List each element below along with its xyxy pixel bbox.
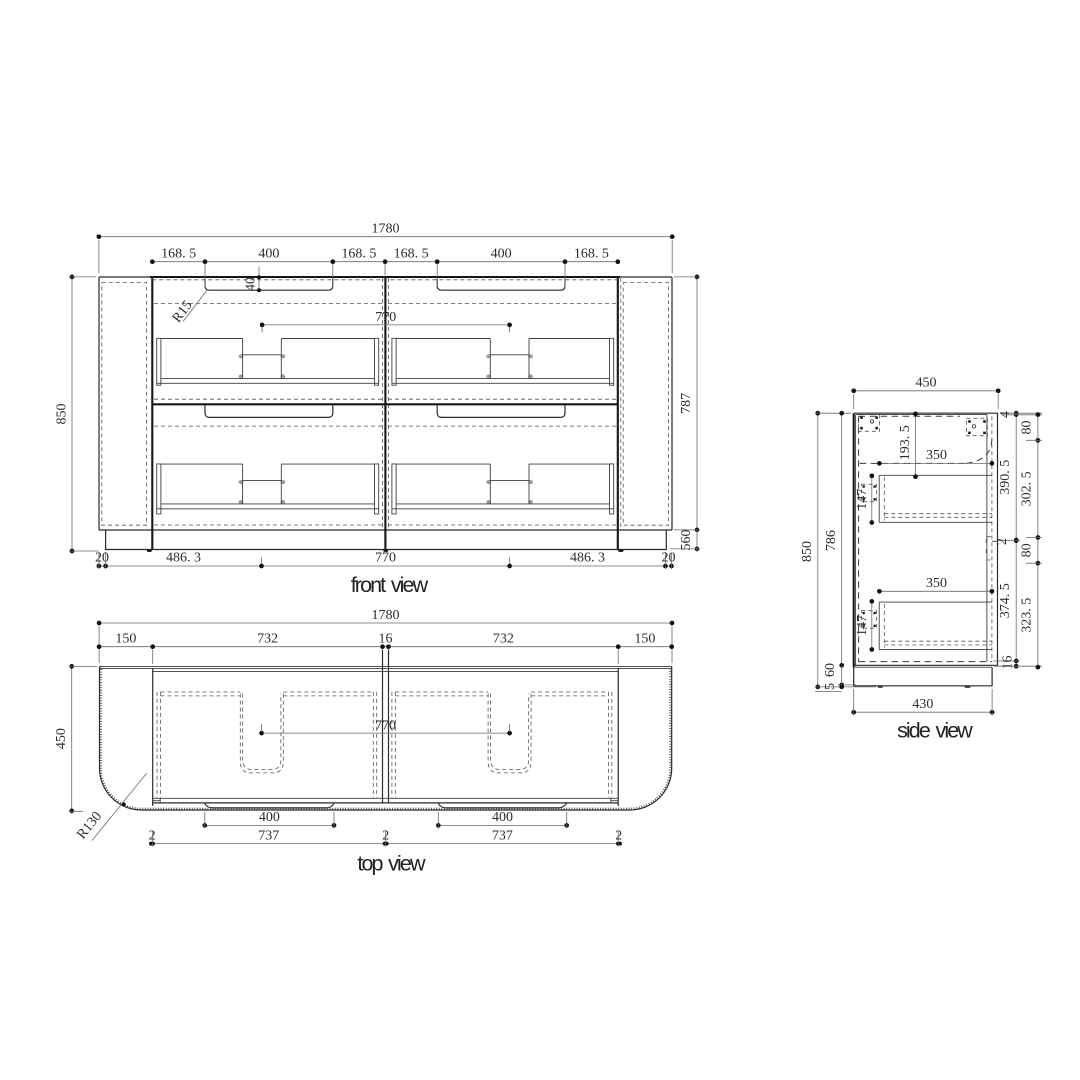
svg-text:486. 3: 486. 3 xyxy=(166,551,201,566)
svg-text:5: 5 xyxy=(823,683,838,690)
svg-text:787: 787 xyxy=(679,393,694,414)
svg-text:168. 5: 168. 5 xyxy=(161,247,196,262)
svg-text:374. 5: 374. 5 xyxy=(998,583,1013,618)
svg-text:450: 450 xyxy=(916,376,937,391)
svg-text:850: 850 xyxy=(800,541,815,562)
svg-text:400: 400 xyxy=(492,810,513,825)
svg-text:20: 20 xyxy=(95,551,109,566)
svg-text:770: 770 xyxy=(375,718,396,733)
svg-text:168. 5: 168. 5 xyxy=(574,247,609,262)
svg-text:732: 732 xyxy=(257,631,278,646)
svg-text:2: 2 xyxy=(995,538,1010,545)
svg-text:737: 737 xyxy=(258,828,279,843)
svg-text:390. 5: 390. 5 xyxy=(998,460,1013,495)
svg-text:302. 5: 302. 5 xyxy=(1020,471,1035,506)
svg-text:4: 4 xyxy=(998,411,1013,418)
svg-text:770: 770 xyxy=(375,310,396,325)
svg-text:1780: 1780 xyxy=(372,222,400,237)
svg-text:450: 450 xyxy=(54,728,69,749)
svg-text:side view: side view xyxy=(897,719,973,743)
svg-text:770: 770 xyxy=(375,551,396,566)
svg-text:2: 2 xyxy=(382,828,389,843)
svg-text:786: 786 xyxy=(824,530,839,551)
svg-text:2: 2 xyxy=(149,828,156,843)
svg-text:350: 350 xyxy=(926,448,947,463)
svg-text:400: 400 xyxy=(259,810,280,825)
svg-text:737: 737 xyxy=(492,828,513,843)
svg-text:323. 5: 323. 5 xyxy=(1020,598,1035,633)
svg-text:150: 150 xyxy=(634,631,655,646)
svg-text:16: 16 xyxy=(1001,656,1016,670)
svg-text:350: 350 xyxy=(926,576,947,591)
svg-text:2: 2 xyxy=(615,828,622,843)
svg-text:1780: 1780 xyxy=(372,608,400,623)
svg-text:732: 732 xyxy=(493,631,514,646)
svg-text:front view: front view xyxy=(351,573,429,597)
svg-text:60: 60 xyxy=(823,663,838,677)
svg-text:193. 5: 193. 5 xyxy=(898,425,913,460)
svg-text:400: 400 xyxy=(491,247,512,262)
svg-text:40: 40 xyxy=(244,277,259,291)
svg-text:20: 20 xyxy=(662,551,676,566)
svg-text:168. 5: 168. 5 xyxy=(341,247,376,262)
svg-text:168. 5: 168. 5 xyxy=(394,247,429,262)
svg-text:486. 3: 486. 3 xyxy=(570,551,605,566)
svg-text:16: 16 xyxy=(379,631,393,646)
svg-text:80: 80 xyxy=(1020,543,1035,557)
svg-text:top view: top view xyxy=(357,852,426,876)
svg-text:147: 147 xyxy=(855,615,870,636)
svg-text:400: 400 xyxy=(258,247,279,262)
svg-text:80: 80 xyxy=(1020,421,1035,435)
svg-text:147: 147 xyxy=(855,489,870,510)
svg-text:150: 150 xyxy=(115,631,136,646)
svg-text:560: 560 xyxy=(679,530,694,551)
svg-text:850: 850 xyxy=(55,404,70,425)
svg-text:430: 430 xyxy=(912,697,933,712)
